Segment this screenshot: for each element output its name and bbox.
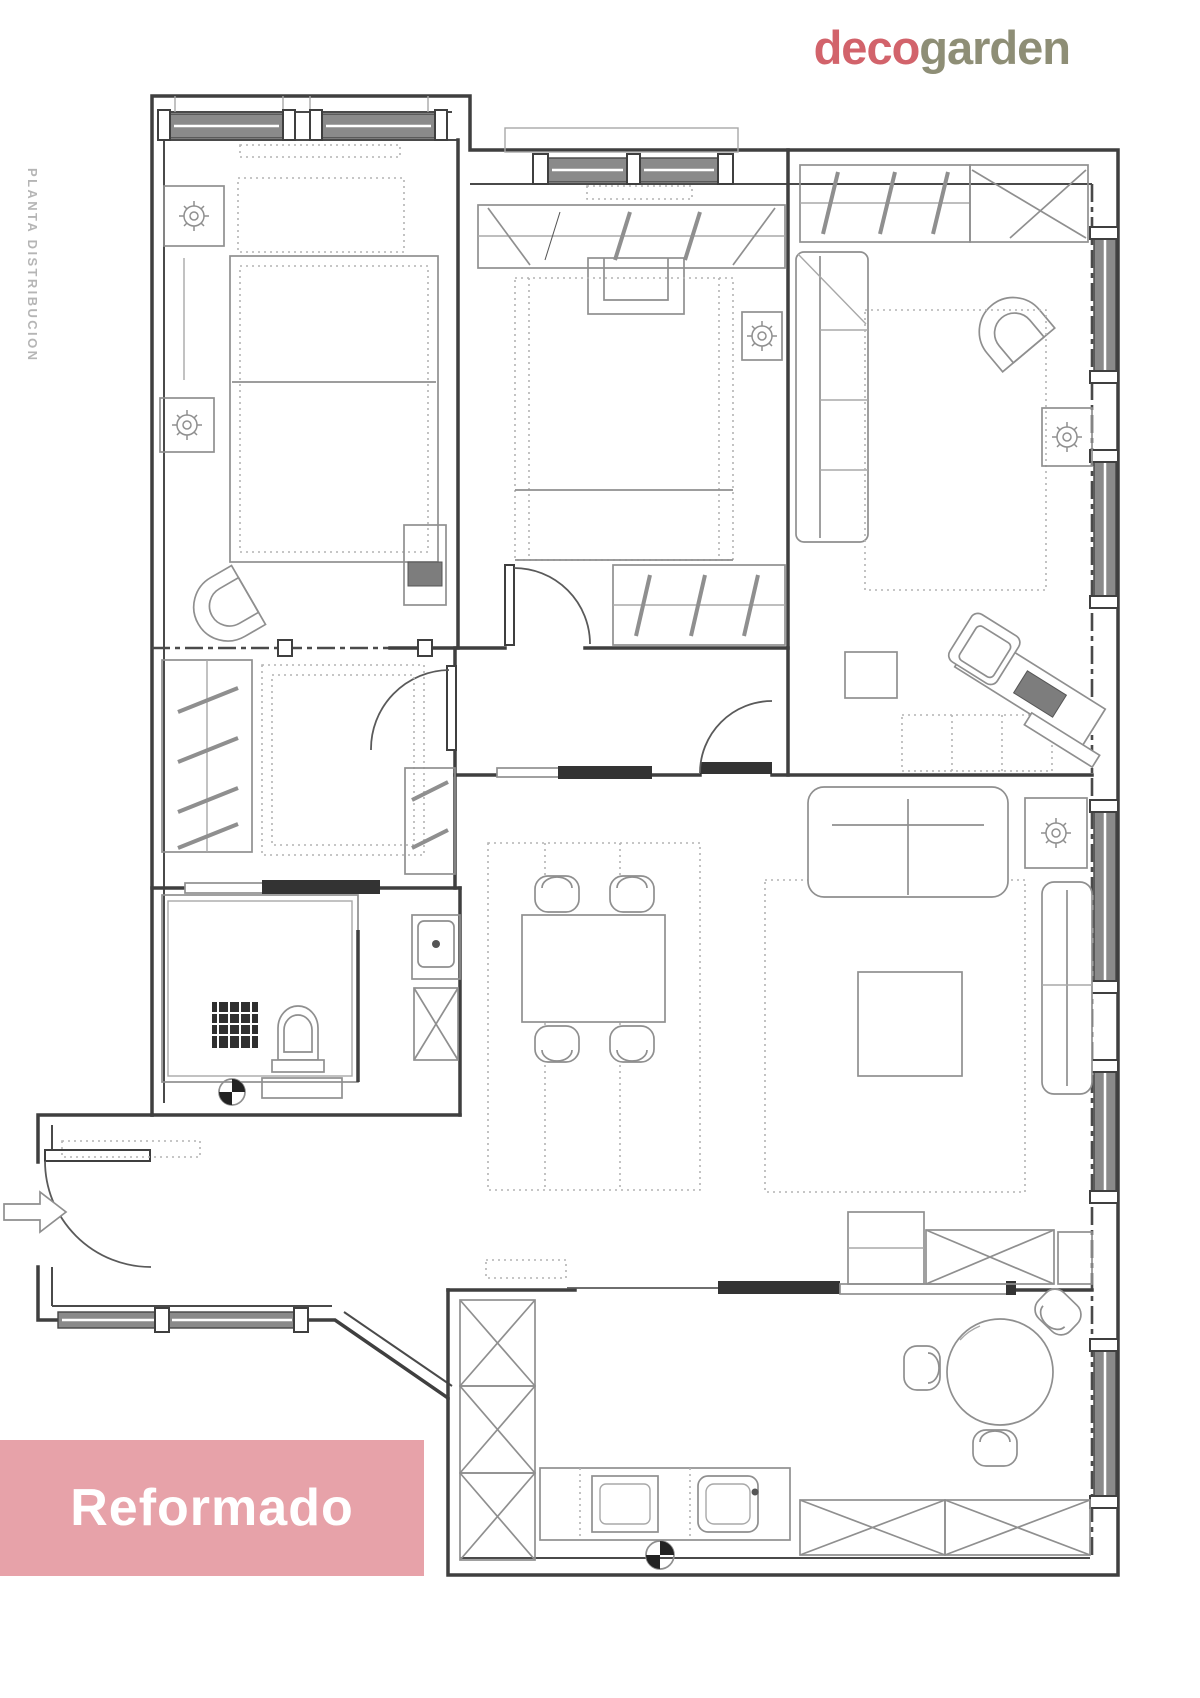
chair <box>973 1430 1017 1466</box>
bedroom-2-furniture <box>478 205 785 645</box>
lamp-icon <box>179 201 209 231</box>
nightstand <box>160 398 214 452</box>
chaise-longue <box>1042 882 1092 1094</box>
kitchen-base-cabinets-x <box>800 1500 1090 1555</box>
headboard-shelf <box>588 258 684 314</box>
nightstand <box>1042 408 1092 466</box>
chair <box>535 876 579 912</box>
bathroom <box>162 895 460 1105</box>
room-3-furniture <box>796 165 1105 771</box>
round-table <box>904 1284 1086 1466</box>
desk-area <box>845 610 1105 771</box>
sofa <box>808 787 1008 897</box>
lamp-icon <box>1052 422 1082 452</box>
bath-cabinet-x <box>414 988 458 1060</box>
kitchen <box>460 1284 1090 1569</box>
side-table <box>1025 798 1087 868</box>
coffee-table <box>858 972 962 1076</box>
chair <box>535 1026 579 1062</box>
armchair <box>181 566 265 654</box>
section-marker <box>646 1541 674 1569</box>
page: decogarden PLANTA DISTRIBUCION Reformado <box>0 0 1200 1698</box>
chair <box>610 876 654 912</box>
living-room <box>765 787 1092 1284</box>
daybed-sofa <box>796 252 868 542</box>
armchair <box>965 284 1054 372</box>
tv-sideboard <box>848 1212 1092 1284</box>
lamp-icon <box>747 321 777 351</box>
bedroom-4-furniture <box>162 660 455 874</box>
nightstand <box>164 186 224 246</box>
chair <box>1030 1284 1087 1340</box>
dining-area <box>488 843 700 1190</box>
chair <box>904 1346 940 1390</box>
double-bed <box>230 256 438 562</box>
logo-part-garden: garden <box>919 21 1070 74</box>
lamp-icon <box>172 410 202 440</box>
logo: decogarden <box>814 20 1070 75</box>
bedroom-1-furniture <box>160 145 446 653</box>
double-bed-2 <box>515 278 733 560</box>
section-marker <box>219 1079 245 1105</box>
logo-part-deco: deco <box>814 21 920 74</box>
toilet <box>272 1006 324 1072</box>
entry-arrow <box>4 1192 66 1232</box>
dining-table <box>522 915 665 1022</box>
shower-drain <box>212 1002 258 1048</box>
lamp-icon <box>1041 818 1071 848</box>
kitchen-tall-cabinets-x <box>460 1300 535 1560</box>
side-label: PLANTA DISTRIBUCION <box>25 168 40 362</box>
shower-tray <box>162 895 358 1082</box>
reformado-stamp: Reformado <box>0 1440 424 1576</box>
single-bed <box>262 665 424 855</box>
chair <box>610 1026 654 1062</box>
stamp-label: Reformado <box>0 1440 424 1576</box>
washbasin <box>412 915 460 979</box>
kitchen-counter <box>540 1468 790 1540</box>
